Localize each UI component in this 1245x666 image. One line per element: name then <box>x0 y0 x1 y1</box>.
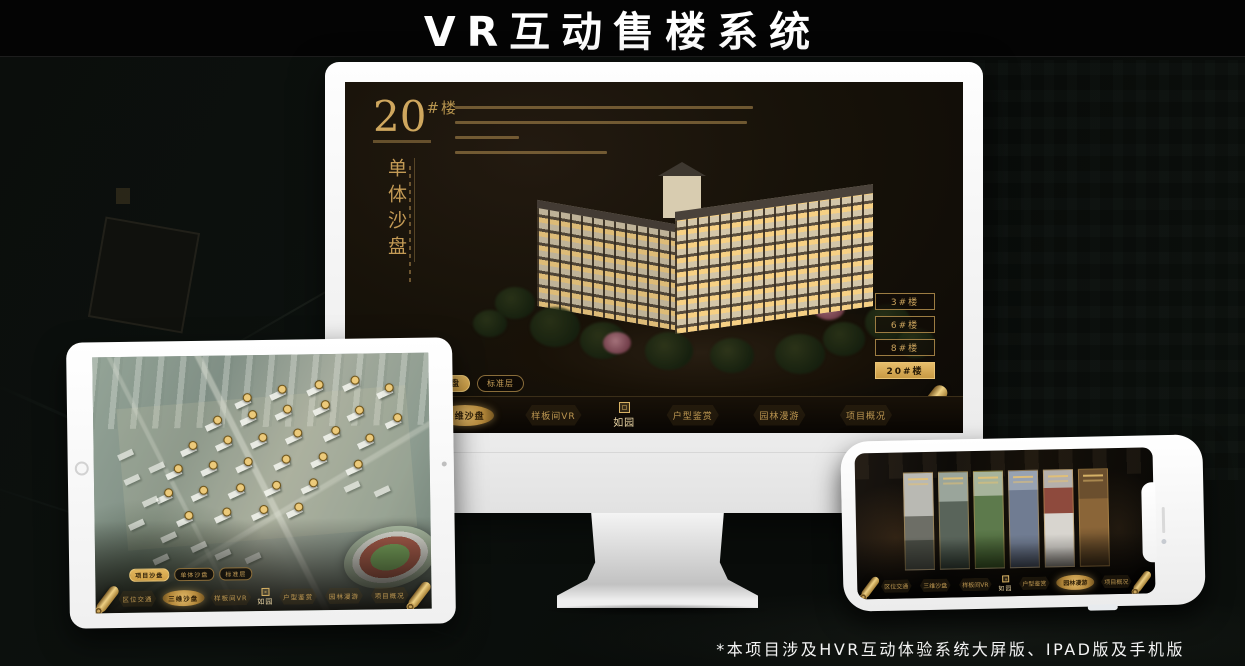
tree <box>473 310 507 337</box>
brand-logo[interactable]: 如园 <box>257 587 273 606</box>
tree <box>823 322 865 356</box>
brand-seal-icon <box>619 402 630 413</box>
phone-screen: 区位交通 三维沙盘 样板间VR 如园 户型鉴赏 园林漫游 项目概况 <box>855 447 1156 599</box>
scroll-brush-icon[interactable] <box>860 575 881 599</box>
nav-unit-gallery[interactable]: 户型鉴赏 <box>1017 576 1051 590</box>
tree <box>530 307 580 347</box>
tablet-navbar: 区位交通 三维沙盘 样板间VR 如园 户型鉴赏 园林漫游 项目概况 <box>95 581 431 614</box>
tablet-home-button[interactable] <box>75 461 89 475</box>
nav-location-traffic[interactable]: 区位交通 <box>116 590 158 607</box>
tablet-tab-standard-floor[interactable]: 标准层 <box>219 567 252 580</box>
scroll-brush-icon[interactable] <box>406 580 431 610</box>
phone-device: 区位交通 三维沙盘 样板间VR 如园 户型鉴赏 园林漫游 项目概况 <box>840 434 1205 612</box>
phone-side-button[interactable] <box>1088 604 1118 611</box>
nav-project-overview[interactable]: 项目概况 <box>369 587 411 604</box>
nav-showroom-vr[interactable]: 样板间VR <box>957 578 994 592</box>
monitor-shadow <box>538 604 778 616</box>
phone-navbar: 区位交通 三维沙盘 样板间VR 如园 户型鉴赏 园林漫游 项目概况 <box>857 568 1155 599</box>
scroll-brush-icon[interactable] <box>1132 569 1153 593</box>
bg-picture-frame <box>88 216 200 333</box>
tablet-tab-single-sandbox[interactable]: 单体沙盘 <box>174 568 214 582</box>
tree <box>645 332 693 370</box>
bg-gold-chip <box>116 188 130 204</box>
footnote: *本项目涉及HVR互动体验系统大屏版、IPAD版及手机版 <box>716 636 1185 660</box>
phone-speaker-icon <box>1162 507 1166 533</box>
nav-3d-sandbox[interactable]: 三维沙盘 <box>918 578 952 592</box>
page-title: VR互动售楼系统 <box>424 0 821 58</box>
tree <box>710 338 754 373</box>
bg-city-texture <box>975 60 1245 480</box>
blossom-tree <box>603 332 631 354</box>
nav-showroom-vr[interactable]: 样板间VR <box>522 405 584 426</box>
title-bar: VR互动售楼系统 <box>0 0 1245 57</box>
floor-button-group: 3#楼 6#楼 8#楼 20#楼 <box>875 293 935 379</box>
tablet-tab-project-sandbox[interactable]: 项目沙盘 <box>129 568 169 582</box>
phone-notch <box>1141 482 1157 562</box>
nav-location-traffic[interactable]: 区位交通 <box>879 579 913 593</box>
nav-unit-gallery[interactable]: 户型鉴赏 <box>664 405 722 426</box>
brand-name: 如园 <box>998 583 1012 592</box>
nav-garden-tour[interactable]: 园林漫游 <box>1056 575 1094 591</box>
tablet-device: 项目沙盘 单体沙盘 标准层 区位交通 三维沙盘 样板间VR 如园 户型鉴赏 园林… <box>66 337 456 628</box>
nav-unit-gallery[interactable]: 户型鉴赏 <box>277 588 319 605</box>
brand-name: 如园 <box>613 414 635 429</box>
brand-seal-icon <box>261 587 269 595</box>
floor-button-6[interactable]: 6#楼 <box>875 316 935 333</box>
floor-button-3[interactable]: 3#楼 <box>875 293 935 310</box>
brand-logo[interactable]: 如园 <box>998 575 1012 592</box>
tree <box>775 334 825 374</box>
nav-project-overview[interactable]: 项目概况 <box>837 405 895 426</box>
nav-garden-tour[interactable]: 园林漫游 <box>750 405 808 426</box>
scroll-brush-icon[interactable] <box>95 584 121 613</box>
nav-garden-tour[interactable]: 园林漫游 <box>323 588 365 605</box>
brand-seal-icon <box>1002 575 1009 582</box>
floor-button-20[interactable]: 20#楼 <box>875 362 935 379</box>
nav-showroom-vr[interactable]: 样板间VR <box>208 589 254 606</box>
phone-camera-icon <box>1161 539 1166 544</box>
brand-name: 如园 <box>257 596 273 606</box>
tablet-camera-icon <box>442 461 447 466</box>
tab-standard-floor[interactable]: 标准层 <box>477 375 524 392</box>
tablet-tab-group: 项目沙盘 单体沙盘 标准层 <box>129 567 252 582</box>
floor-button-8[interactable]: 8#楼 <box>875 339 935 356</box>
nav-3d-sandbox[interactable]: 三维沙盘 <box>162 590 204 607</box>
brand-logo[interactable]: 如园 <box>613 402 635 429</box>
tablet-screen: 项目沙盘 单体沙盘 标准层 区位交通 三维沙盘 样板间VR 如园 户型鉴赏 园林… <box>92 353 432 614</box>
nav-project-overview[interactable]: 项目概况 <box>1099 575 1133 589</box>
